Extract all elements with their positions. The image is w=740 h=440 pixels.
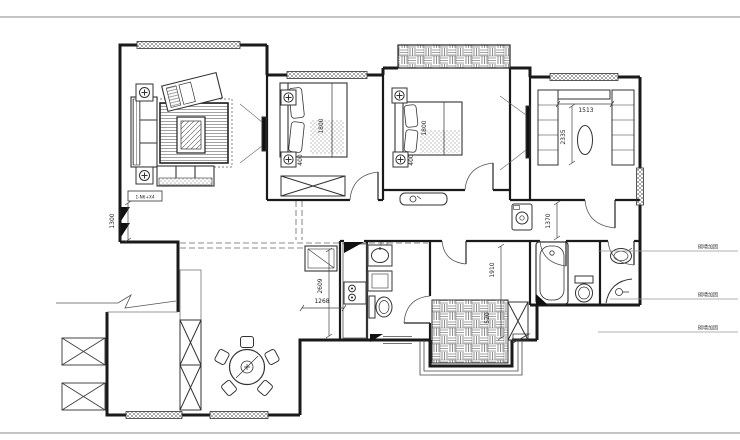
sofa-bottom xyxy=(157,166,214,186)
study-side-window xyxy=(637,168,644,205)
tv-leader-lines xyxy=(240,104,262,163)
pouf-rug xyxy=(578,126,593,155)
dim-bath-hall: 1370 xyxy=(545,213,552,228)
dining-room xyxy=(214,337,280,397)
main-bathroom xyxy=(536,242,593,305)
wall-note-1: 砌墙加固 xyxy=(698,244,718,251)
bedroom2-wardrobe xyxy=(398,45,510,68)
nightstand-lamp xyxy=(393,152,408,167)
dim-bed2-nightstand: 400 xyxy=(408,154,415,166)
bedroom1 xyxy=(280,83,347,196)
dim-study-width: 1513 xyxy=(578,107,593,114)
wardrobe-right xyxy=(612,90,634,165)
living-window xyxy=(137,42,240,49)
nightstand-lamp xyxy=(281,90,296,105)
vanity-sink xyxy=(368,245,392,266)
corridor xyxy=(400,193,447,205)
cabinet xyxy=(368,271,392,291)
side-table-lamp-top xyxy=(136,84,153,101)
fridge xyxy=(305,246,337,271)
wall-section-markers xyxy=(121,207,130,237)
dining-window-left xyxy=(126,412,182,419)
tv-panel-living xyxy=(262,117,266,151)
break-line-symbol xyxy=(56,295,176,308)
bathroom1 xyxy=(368,245,392,318)
floor-plan-sheet: 1300 1800 400 1800 400 1513 2335 2609 12… xyxy=(0,0,740,440)
washing-machine xyxy=(512,204,532,230)
dim-kitchen-depth: 2609 xyxy=(317,278,324,293)
dim-kitchen-width: 1268 xyxy=(314,298,329,305)
kitchen xyxy=(305,242,367,338)
left-balcony xyxy=(56,295,178,410)
wall-note-2: 砌墙加固 xyxy=(698,292,718,299)
bedroom1-window xyxy=(287,72,367,79)
structural-column xyxy=(180,270,201,410)
toilet xyxy=(369,296,392,318)
detail-tag: 1-N6+X4 xyxy=(128,191,162,201)
dim-living-wall: 1300 xyxy=(109,213,116,228)
dim-bed2: 1800 xyxy=(421,120,428,135)
dim-study-depth: 2335 xyxy=(560,129,567,144)
toilet xyxy=(575,276,593,302)
kitchen-door-wedge xyxy=(344,242,364,253)
bench-chest xyxy=(281,176,345,196)
study-window xyxy=(550,74,618,81)
floor-plan-drawing: 1300 1800 400 1800 400 1513 2335 2609 12… xyxy=(0,0,740,440)
tv-panel-bedroom2 xyxy=(526,106,530,158)
stove xyxy=(344,282,366,304)
living-room xyxy=(131,73,266,186)
laundry-balcony xyxy=(432,300,528,363)
side-table-lamp-bottom xyxy=(136,167,153,184)
dining-window-right xyxy=(210,412,268,419)
console-table xyxy=(400,193,447,205)
dim-laundry-width: 520 xyxy=(484,312,491,324)
nightstand-lamp xyxy=(281,152,296,167)
detail-tag-text: 1-N6+X4 xyxy=(135,194,154,199)
tv-leader-lines xyxy=(500,96,526,170)
dim-bed1: 1800 xyxy=(318,118,325,133)
cabinet-top xyxy=(558,90,610,99)
wall-note-3: 砌墙加固 xyxy=(698,325,718,332)
wardrobe-left xyxy=(538,90,558,165)
dim-laundry-depth: 1910 xyxy=(489,262,496,277)
dining-table xyxy=(230,350,265,385)
corner-shower xyxy=(606,279,632,303)
dim-bed1-nightstand: 400 xyxy=(297,154,304,166)
bath-hall xyxy=(512,204,532,230)
nightstand-lamp xyxy=(392,88,407,103)
guest-bathroom xyxy=(606,248,632,303)
laundry-floor-hatch xyxy=(432,300,508,363)
bed-2 xyxy=(395,102,462,155)
study-room xyxy=(538,90,634,165)
bathtub xyxy=(536,242,568,304)
sofa-main xyxy=(131,97,157,167)
